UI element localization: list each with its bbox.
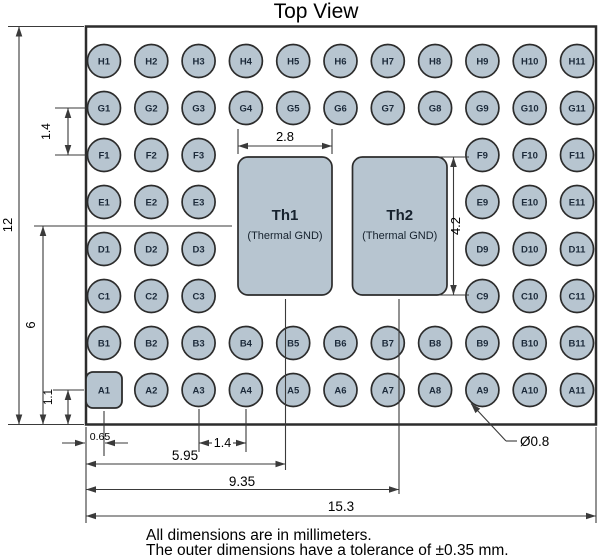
package-pinout-figure: Top ViewTh1(Thermal GND)Th2(Thermal GND)… xyxy=(0,0,600,556)
pin-label-G9: G9 xyxy=(476,104,489,115)
pin-label-C10: C10 xyxy=(521,292,538,303)
dim-pad-height: 4.2 xyxy=(448,217,463,235)
pin-label-A1: A1 xyxy=(98,386,111,397)
pin-label-D2: D2 xyxy=(145,245,157,256)
arrowhead xyxy=(65,390,72,400)
pin-label-G8: G8 xyxy=(429,104,442,115)
pin-label-G6: G6 xyxy=(334,104,347,115)
pin-label-B2: B2 xyxy=(145,339,157,350)
pin-label-E9: E9 xyxy=(477,198,489,209)
dim-edge-to-th1: 5.95 xyxy=(172,448,198,463)
pin-label-D9: D9 xyxy=(476,245,488,256)
pin-label-H7: H7 xyxy=(382,57,394,68)
pin-label-H8: H8 xyxy=(429,57,441,68)
thermal-pad-th2 xyxy=(353,157,448,295)
pin-label-H4: H4 xyxy=(240,57,253,68)
pin-label-G1: G1 xyxy=(98,104,111,115)
pin-label-A9: A9 xyxy=(476,386,488,397)
note-line-2: The outer dimensions have a tolerance of… xyxy=(146,542,509,556)
dim-overall-width: 15.3 xyxy=(328,499,354,514)
pin-label-G5: G5 xyxy=(287,104,300,115)
pin-label-B8: B8 xyxy=(429,339,441,350)
pin-label-A3: A3 xyxy=(193,386,205,397)
pin-label-E3: E3 xyxy=(193,198,205,209)
pin-label-G4: G4 xyxy=(240,104,253,115)
pin-label-B6: B6 xyxy=(334,339,346,350)
pin-label-H9: H9 xyxy=(476,57,488,68)
pin-label-E11: E11 xyxy=(569,198,586,209)
pin-label-F9: F9 xyxy=(477,151,488,162)
pin-label-B11: B11 xyxy=(569,339,587,350)
thermal-pad-sublabel: (Thermal GND) xyxy=(247,230,322,242)
pin-label-A2: A2 xyxy=(145,386,157,397)
arrowhead xyxy=(65,415,72,425)
dim-edge-to-th2: 9.35 xyxy=(229,474,255,489)
dim-a-row-to-edge: 1.1 xyxy=(43,389,55,405)
pin-label-F3: F3 xyxy=(193,151,204,162)
pin-label-B9: B9 xyxy=(476,339,488,350)
page-title: Top View xyxy=(274,0,360,23)
arrowhead xyxy=(86,461,96,468)
arrowhead xyxy=(389,486,399,493)
pin-label-C3: C3 xyxy=(193,292,205,303)
pin-label-F11: F11 xyxy=(569,151,586,162)
pin-label-B1: B1 xyxy=(98,339,111,350)
dim-overall-height: 12 xyxy=(0,218,15,232)
thermal-pad-th1 xyxy=(238,157,332,295)
dim-row-pitch: 1.4 xyxy=(39,123,53,140)
arrowhead xyxy=(16,415,23,425)
pin-label-E10: E10 xyxy=(521,198,538,209)
pin-label-H10: H10 xyxy=(521,57,538,68)
pin-label-A7: A7 xyxy=(382,386,394,397)
pin-label-D10: D10 xyxy=(521,245,538,256)
pin-label-B10: B10 xyxy=(521,339,538,350)
pin-label-A6: A6 xyxy=(334,386,346,397)
pin-label-D3: D3 xyxy=(193,245,205,256)
pin-label-C2: C2 xyxy=(145,292,157,303)
pin-label-D1: D1 xyxy=(98,245,111,256)
pin-label-B3: B3 xyxy=(193,339,205,350)
arrowhead xyxy=(65,108,72,118)
pin-label-A11: A11 xyxy=(569,386,587,397)
arrowhead xyxy=(586,513,596,520)
pin-label-C1: C1 xyxy=(98,292,111,303)
arrowhead xyxy=(199,440,209,447)
arrowhead xyxy=(40,415,47,425)
arrowhead xyxy=(86,513,96,520)
arrowhead xyxy=(276,461,286,468)
pin-label-H6: H6 xyxy=(334,57,346,68)
pin-label-F1: F1 xyxy=(98,151,110,162)
dim-pad-width: 2.8 xyxy=(276,129,294,144)
pin-label-H3: H3 xyxy=(193,57,205,68)
pin-label-C11: C11 xyxy=(569,292,587,303)
dim-center-to-bottom: 6 xyxy=(23,321,38,328)
pin-label-A8: A8 xyxy=(429,386,441,397)
arrowhead xyxy=(236,440,246,447)
pin-label-B5: B5 xyxy=(287,339,300,350)
pin-label-D11: D11 xyxy=(569,245,587,256)
thermal-pad-sublabel: (Thermal GND) xyxy=(362,230,437,242)
pin-label-G11: G11 xyxy=(568,104,586,115)
pin-label-A5: A5 xyxy=(287,386,300,397)
pin-label-A10: A10 xyxy=(521,386,538,397)
pin-label-G10: G10 xyxy=(521,104,539,115)
pin-label-H5: H5 xyxy=(287,57,300,68)
pin-label-A4: A4 xyxy=(240,386,253,397)
pin-label-B7: B7 xyxy=(382,339,394,350)
pin-label-B4: B4 xyxy=(240,339,253,350)
thermal-pad-name: Th1 xyxy=(272,207,299,224)
arrowhead xyxy=(40,226,47,236)
pin-label-H1: H1 xyxy=(98,57,111,68)
pin-label-E1: E1 xyxy=(98,198,110,209)
arrowhead xyxy=(16,27,23,37)
pin-label-F10: F10 xyxy=(522,151,538,162)
pin-label-H11: H11 xyxy=(569,57,587,68)
pin-label-G2: G2 xyxy=(145,104,158,115)
dim-col-pitch: 1.4 xyxy=(214,436,231,450)
pin-label-C9: C9 xyxy=(476,292,488,303)
pin-label-G7: G7 xyxy=(381,104,394,115)
arrowhead xyxy=(86,486,96,493)
top-view-drawing: Top ViewTh1(Thermal GND)Th2(Thermal GND)… xyxy=(0,0,600,556)
pin-label-F2: F2 xyxy=(146,151,157,162)
pin-label-G3: G3 xyxy=(192,104,205,115)
dim-pin-diameter: Ø0.8 xyxy=(520,434,549,449)
pin-label-E2: E2 xyxy=(145,198,157,209)
thermal-pad-name: Th2 xyxy=(386,207,413,224)
arrowhead xyxy=(65,145,72,155)
arrowhead xyxy=(75,440,85,447)
dim-edge-to-a1: 0.65 xyxy=(90,431,111,443)
pin-label-H2: H2 xyxy=(145,57,157,68)
